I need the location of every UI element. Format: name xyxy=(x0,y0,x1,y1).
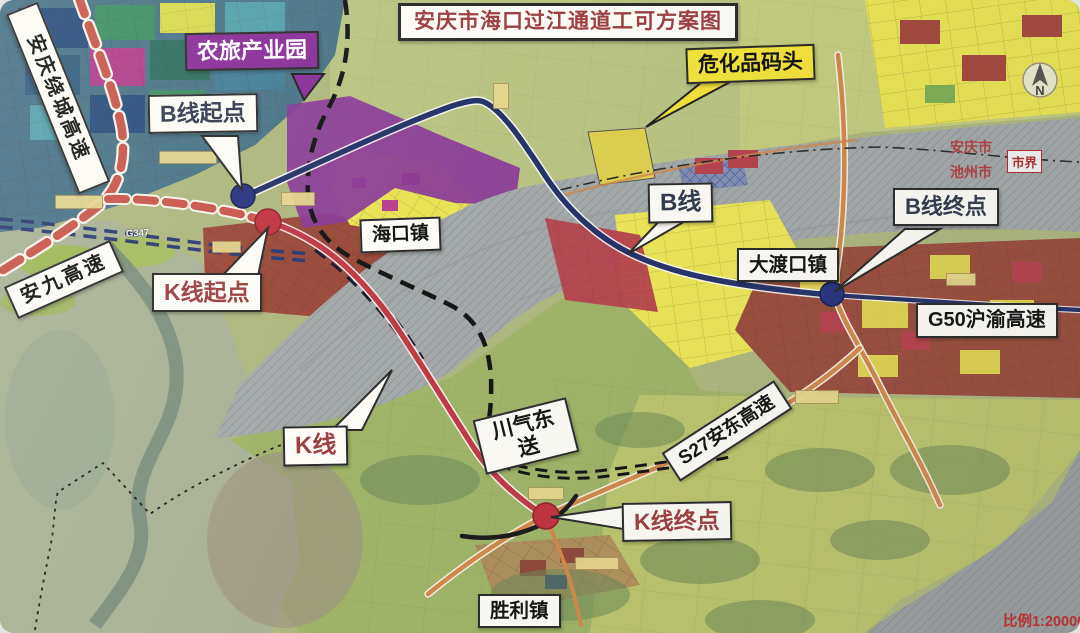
map-chip xyxy=(55,195,103,209)
anjiu-expressway-label: 安九高速 xyxy=(4,240,124,319)
ring-expressway-label: 安庆绕城高速 xyxy=(6,2,111,195)
g50-expressway-label: G50沪渝高速 xyxy=(916,303,1058,338)
s27-expressway-label: S27安东高速 xyxy=(662,380,793,481)
town-haikou-label: 海口镇 xyxy=(359,217,441,254)
hazmat-dock-label: 危化品码头 xyxy=(685,44,815,85)
city-boundary-marker: 市界 xyxy=(1007,150,1042,173)
city-chizhou-label: 池州市 xyxy=(950,162,992,182)
b-line-label: B线 xyxy=(648,182,714,223)
plan-map: N xyxy=(0,0,1080,633)
city-anqing-label: 安庆市 xyxy=(950,137,992,157)
map-chip xyxy=(946,273,976,286)
g347-label: G347 xyxy=(126,227,150,239)
k-end-tail xyxy=(548,503,633,533)
k-end-label: K线终点 xyxy=(622,501,732,542)
k-start-label: K线起点 xyxy=(152,273,262,312)
b-start-tail xyxy=(194,132,250,194)
b-end-tail xyxy=(830,226,944,296)
town-dadukou-label: 大渡口镇 xyxy=(737,248,839,282)
agri-park-tail xyxy=(286,70,328,104)
map-chip xyxy=(575,557,619,570)
map-chip xyxy=(528,487,564,500)
map-chip xyxy=(493,83,509,109)
gas-pipeline-label: 川气东送 xyxy=(473,397,580,475)
b-start-label: B线起点 xyxy=(148,93,258,134)
scale-note: 比例1:20000 xyxy=(1003,610,1080,631)
b-end-label: B线终点 xyxy=(893,188,999,226)
k-start-tail xyxy=(216,224,272,280)
map-title: 安庆市海口过江通道工可方案图 xyxy=(398,3,738,41)
k-line-label: K线 xyxy=(283,425,349,466)
map-chip xyxy=(281,192,315,206)
map-chip xyxy=(795,390,839,404)
agri-park-label: 农旅产业园 xyxy=(185,31,320,71)
map-screenshot: N xyxy=(0,0,1080,633)
town-shengli-label: 胜利镇 xyxy=(478,594,561,628)
k-line-tail xyxy=(324,364,396,434)
